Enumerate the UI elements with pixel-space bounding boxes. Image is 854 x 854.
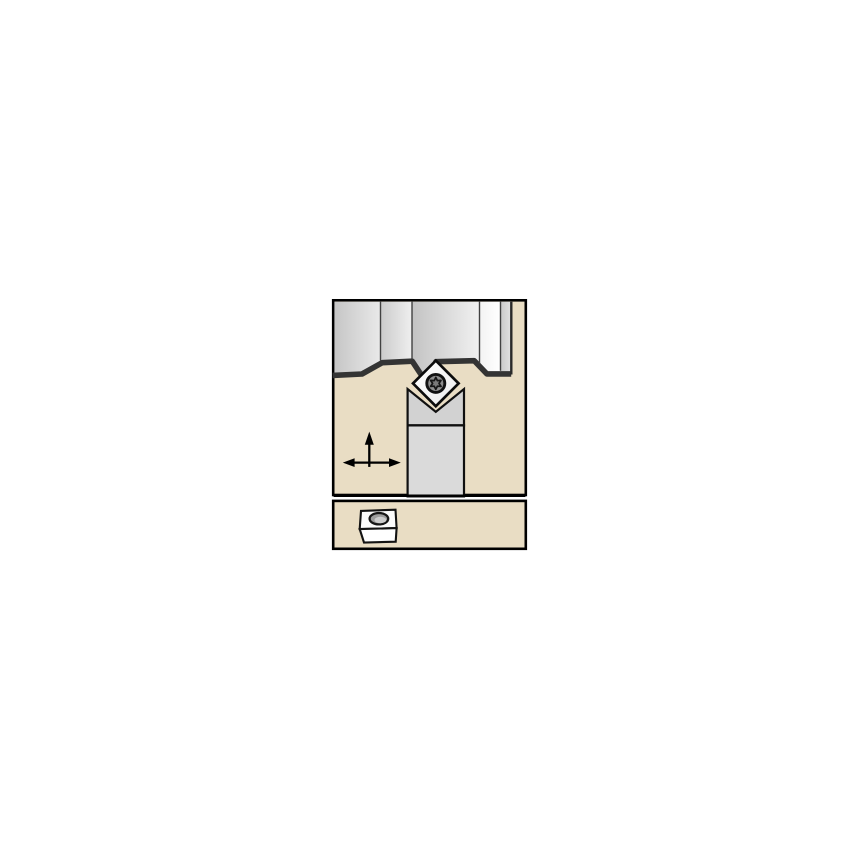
workpiece-segment-4 (480, 302, 501, 372)
spare-insert-front-face (360, 528, 397, 542)
workpiece-segment-5 (501, 302, 512, 372)
catalog-illustration (0, 0, 854, 854)
workpiece-segment-1 (334, 302, 380, 373)
workpiece-segment-2 (381, 302, 413, 361)
shape-layer (333, 300, 526, 549)
toolholder-shank (408, 425, 464, 496)
spare-insert-hole-highlight (375, 517, 387, 523)
tool-diagram-svg (0, 0, 854, 854)
